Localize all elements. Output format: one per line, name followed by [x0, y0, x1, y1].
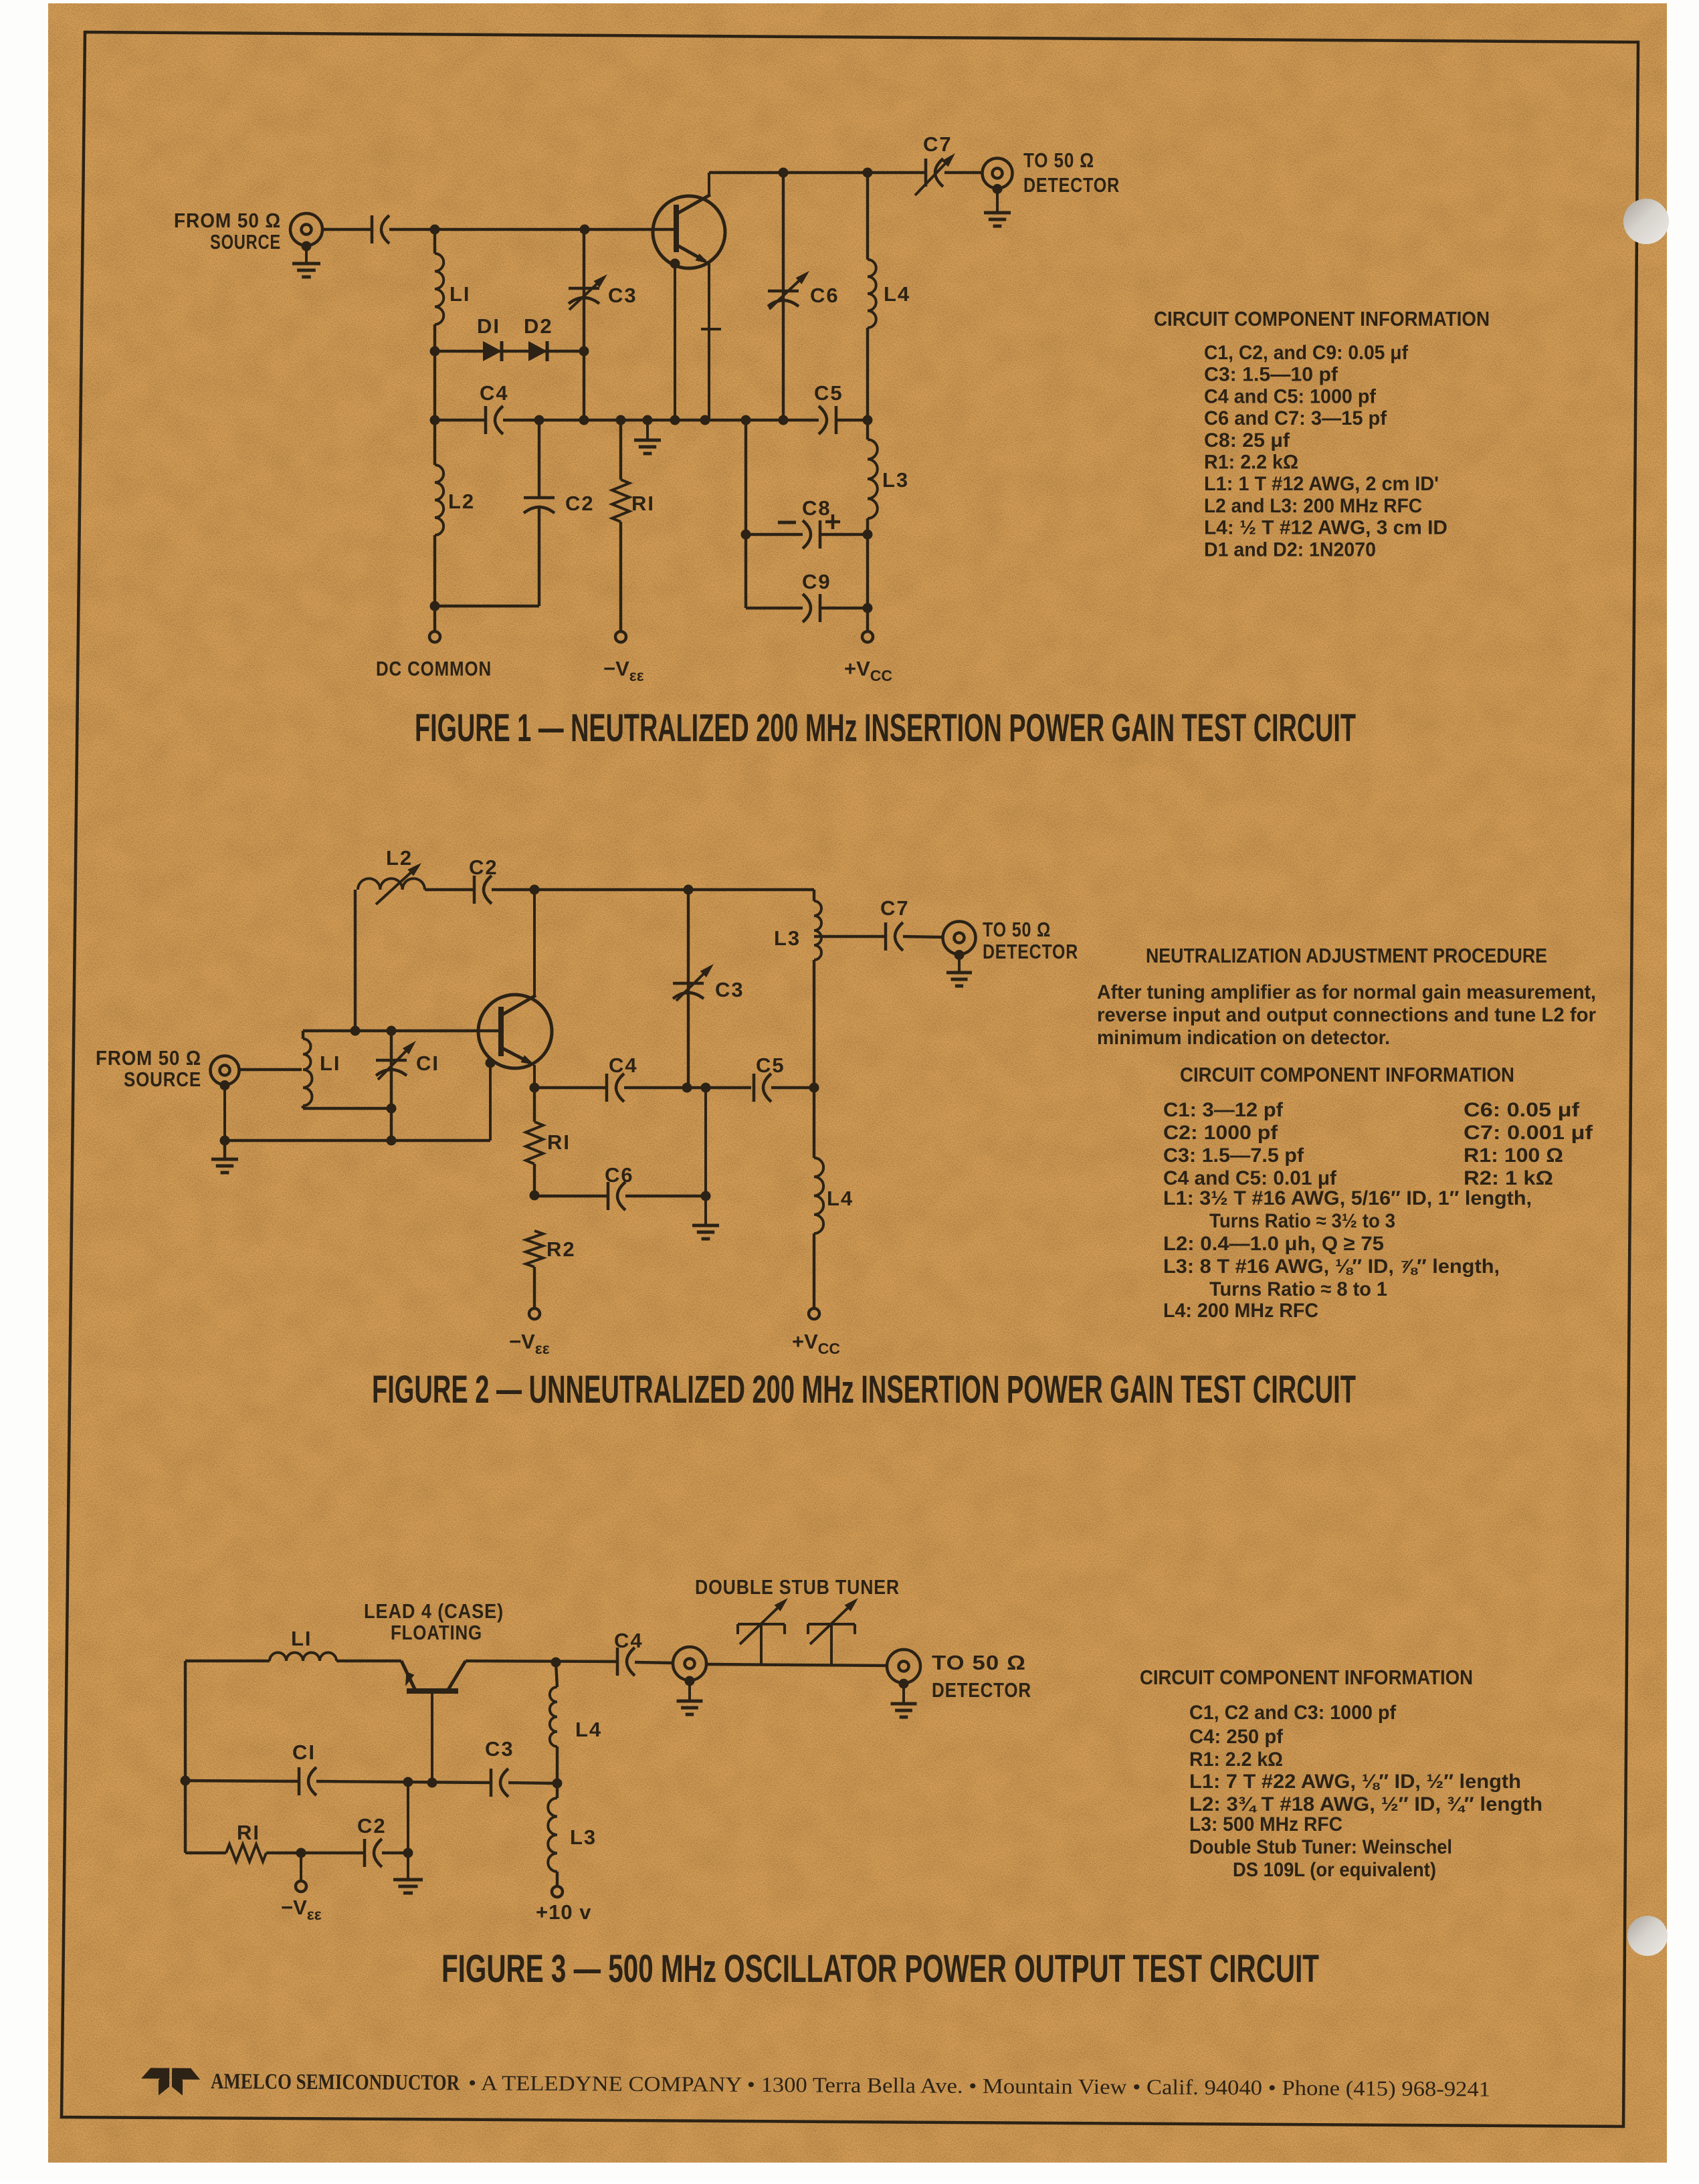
- svg-text:L4: L4: [827, 1187, 854, 1210]
- svg-text:C4: C4: [480, 381, 509, 405]
- svg-text:L3: L3: [774, 926, 801, 950]
- svg-text:DETECTOR: DETECTOR: [932, 1678, 1031, 1702]
- svg-text:L4: L4: [575, 1718, 602, 1741]
- svg-text:L4: L4: [884, 282, 910, 306]
- svg-text:FIGURE 3 — 500 MHz OSCILLATOR: FIGURE 3 — 500 MHz OSCILLATOR POWER OUTP…: [441, 1947, 1319, 1991]
- svg-text:C1, C2 and C3: 1000 pf: C1, C2 and C3: 1000 pf: [1189, 1702, 1397, 1724]
- svg-text:FROM 50 Ω: FROM 50 Ω: [96, 1046, 201, 1070]
- svg-text:reverse input and output conne: reverse input and output connections and…: [1097, 1004, 1596, 1026]
- svg-text:LI: LI: [291, 1627, 312, 1650]
- svg-text:C4 and C5: 0.01 μf: C4 and C5: 0.01 μf: [1163, 1167, 1337, 1189]
- svg-text:TO 50 Ω: TO 50 Ω: [983, 918, 1051, 941]
- svg-text:L3: 8 T #16 AWG, ⅛″ ID, ⅞″ le: L3: 8 T #16 AWG, ⅛″ ID, ⅞″ length,: [1163, 1256, 1500, 1278]
- svg-text:LEAD 4 (CASE): LEAD 4 (CASE): [364, 1599, 504, 1623]
- svg-text:C1, C2, and C9: 0.05 μf: C1, C2, and C9: 0.05 μf: [1204, 342, 1409, 364]
- svg-text:C4: 250 pf: C4: 250 pf: [1189, 1726, 1284, 1748]
- svg-text:D2: D2: [524, 314, 553, 338]
- svg-text:C3: C3: [485, 1737, 514, 1761]
- svg-text:L1: 1 T #12 AWG, 2 cm ID': L1: 1 T #12 AWG, 2 cm ID': [1204, 473, 1439, 495]
- svg-text:R1: 2.2 kΩ: R1: 2.2 kΩ: [1189, 1749, 1283, 1771]
- svg-text:L1: 7 T #22 AWG, ⅛″ ID, ½″ le: L1: 7 T #22 AWG, ⅛″ ID, ½″ length: [1189, 1771, 1521, 1793]
- svg-text:SOURCE: SOURCE: [124, 1068, 201, 1091]
- svg-text:FIGURE 2 — UNNEUTRALIZED 200 M: FIGURE 2 — UNNEUTRALIZED 200 MHz INSERTI…: [372, 1368, 1356, 1411]
- svg-text:CIRCUIT COMPONENT INFORMATIO: CIRCUIT COMPONENT INFORMATION: [1140, 1666, 1473, 1689]
- svg-text:C8: 25 μf: C8: 25 μf: [1204, 429, 1290, 452]
- svg-text:FLOATING: FLOATING: [391, 1621, 482, 1644]
- svg-text:FROM 50 Ω: FROM 50 Ω: [174, 209, 281, 232]
- svg-text:C9: C9: [802, 570, 831, 593]
- svg-text:NEUTRALIZATION ADJUSTMENT PR: NEUTRALIZATION ADJUSTMENT PROCEDURE: [1146, 944, 1547, 967]
- svg-text:L1: 3½ T #16 AWG, 5/16″ ID, 1: L1: 3½ T #16 AWG, 5/16″ ID, 1″ length,: [1163, 1187, 1532, 1209]
- svg-text:C6: C6: [810, 284, 839, 307]
- svg-text:RI: RI: [547, 1130, 571, 1154]
- svg-text:C3: C3: [608, 284, 637, 307]
- svg-text:L3: L3: [570, 1825, 597, 1849]
- svg-text:C2: C2: [565, 492, 595, 515]
- svg-text:RI: RI: [237, 1821, 260, 1844]
- svg-text:R1: 100 Ω: R1: 100 Ω: [1464, 1145, 1563, 1167]
- svg-text:C7: C7: [923, 132, 953, 156]
- svg-text:AMELCO SEMICONDUCTOR: AMELCO SEMICONDUCTOR: [211, 2070, 460, 2095]
- svg-text:L2: 0.4—1.0 μh, Q ≥ 75: L2: 0.4—1.0 μh, Q ≥ 75: [1163, 1233, 1384, 1255]
- svg-text:Turns Ratio ≈ 8 to 1: Turns Ratio ≈ 8 to 1: [1209, 1278, 1387, 1300]
- svg-text:Turns Ratio ≈ 3½ to 3: Turns Ratio ≈ 3½ to 3: [1209, 1210, 1395, 1232]
- svg-text:Double Stub Tuner: Weinschel: Double Stub Tuner: Weinschel: [1189, 1836, 1452, 1858]
- svg-text:DETECTOR: DETECTOR: [1023, 173, 1120, 197]
- svg-text:CIRCUIT COMPONENT INFORMATIO: CIRCUIT COMPONENT INFORMATION: [1180, 1063, 1514, 1086]
- svg-text:CIRCUIT COMPONENT INFORMATIO: CIRCUIT COMPONENT INFORMATION: [1154, 307, 1490, 330]
- svg-text:C2: 1000 pf: C2: 1000 pf: [1163, 1122, 1278, 1144]
- svg-text:L2: 3¾ T #18 AWG, ½″ ID, ¾″ l: L2: 3¾ T #18 AWG, ½″ ID, ¾″ length: [1189, 1793, 1542, 1815]
- svg-text:CI: CI: [416, 1052, 439, 1075]
- svg-text:L2: L2: [386, 846, 413, 870]
- svg-text:RI: RI: [631, 492, 655, 515]
- svg-text:LI: LI: [449, 282, 471, 306]
- svg-text:R1: 2.2 kΩ: R1: 2.2 kΩ: [1204, 452, 1298, 474]
- svg-text:TO 50 Ω: TO 50 Ω: [1023, 148, 1094, 172]
- svg-text:FIGURE 1 — NEUTRALIZED 200 MHz: FIGURE 1 — NEUTRALIZED 200 MHz INSERTION…: [415, 706, 1356, 750]
- svg-text:After tuning amplifier as for: After tuning amplifier as for normal gai…: [1097, 981, 1596, 1003]
- svg-text:+10 v: +10 v: [536, 1900, 591, 1924]
- svg-text:C5: C5: [756, 1054, 785, 1077]
- svg-text:L3: 500 MHz RFC: L3: 500 MHz RFC: [1189, 1813, 1342, 1835]
- svg-text:R2: R2: [546, 1237, 576, 1261]
- svg-text:TO 50 Ω: TO 50 Ω: [932, 1651, 1026, 1674]
- svg-text:LI: LI: [320, 1052, 341, 1075]
- svg-text:L3: L3: [882, 468, 909, 492]
- svg-text:DOUBLE STUB TUNER: DOUBLE STUB TUNER: [695, 1575, 900, 1599]
- svg-text:C2: C2: [357, 1814, 387, 1838]
- svg-text:DI: DI: [477, 314, 500, 338]
- svg-text:C6: 0.05 μf: C6: 0.05 μf: [1464, 1099, 1580, 1121]
- svg-text:C4: C4: [614, 1629, 643, 1652]
- svg-text:minimum indication on detector: minimum indication on detector.: [1097, 1027, 1390, 1049]
- svg-text:L2 and L3: 200 MHz RFC: L2 and L3: 200 MHz RFC: [1204, 495, 1422, 517]
- svg-text:C6: C6: [605, 1163, 634, 1187]
- svg-text:C4 and C5: 1000 pf: C4 and C5: 1000 pf: [1204, 385, 1377, 407]
- svg-text:C3: C3: [715, 978, 744, 1001]
- svg-text:D1 and D2: 1N2070: D1 and D2: 1N2070: [1204, 538, 1376, 561]
- svg-text:C6 and C7: 3—15 pf: C6 and C7: 3—15 pf: [1204, 407, 1387, 429]
- svg-text:C8: C8: [802, 496, 831, 520]
- svg-text:DETECTOR: DETECTOR: [983, 940, 1078, 963]
- svg-text:L4: 200 MHz RFC: L4: 200 MHz RFC: [1163, 1300, 1318, 1322]
- svg-text:DC COMMON: DC COMMON: [376, 657, 492, 680]
- svg-text:C1: 3—12 pf: C1: 3—12 pf: [1163, 1099, 1284, 1121]
- svg-text:SOURCE: SOURCE: [210, 230, 281, 254]
- svg-text:C3: 1.5—10 pf: C3: 1.5—10 pf: [1204, 364, 1338, 386]
- svg-text:R2: 1 kΩ: R2: 1 kΩ: [1464, 1167, 1553, 1189]
- svg-text:C5: C5: [814, 381, 843, 405]
- svg-text:CI: CI: [292, 1741, 316, 1764]
- svg-text:C7: C7: [880, 896, 910, 920]
- svg-text:L4: ½ T #12 AWG, 3 cm ID: L4: ½ T #12 AWG, 3 cm ID: [1204, 517, 1447, 539]
- svg-text:C2: C2: [469, 856, 498, 879]
- svg-text:DS 109L (or equivalent): DS 109L (or equivalent): [1233, 1859, 1436, 1881]
- svg-text:L2: L2: [448, 490, 475, 513]
- svg-text:C7: 0.001 μf: C7: 0.001 μf: [1464, 1122, 1593, 1144]
- svg-text:C4: C4: [609, 1054, 638, 1077]
- svg-text:C3: 1.5—7.5 pf: C3: 1.5—7.5 pf: [1163, 1145, 1304, 1167]
